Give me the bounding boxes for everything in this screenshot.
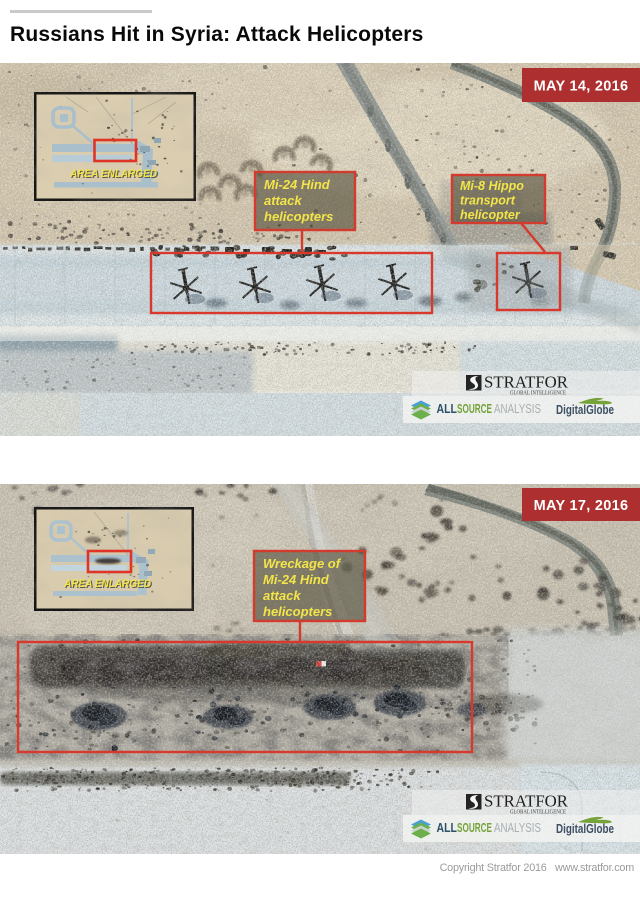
svg-text:DigitalGlobe: DigitalGlobe	[556, 821, 614, 836]
svg-text:ANALYSIS: ANALYSIS	[494, 402, 541, 416]
svg-text:helicopters: helicopters	[263, 604, 332, 619]
svg-text:helicopters: helicopters	[264, 209, 333, 224]
svg-text:Mi-24 Hind: Mi-24 Hind	[264, 177, 331, 192]
svg-text:GLOBAL INTELLIGENCE: GLOBAL INTELLIGENCE	[510, 390, 566, 397]
svg-text:ALL: ALL	[437, 402, 458, 416]
svg-text:DigitalGlobe: DigitalGlobe	[556, 402, 614, 417]
svg-text:MAY 14, 2016: MAY 14, 2016	[534, 79, 629, 95]
svg-text:AREA ENLARGED: AREA ENLARGED	[63, 578, 151, 590]
svg-text:Mi-8 Hippo: Mi-8 Hippo	[460, 179, 524, 193]
svg-text:Wreckage of: Wreckage of	[263, 556, 342, 571]
svg-text:SOURCE: SOURCE	[457, 402, 492, 416]
svg-text:Mi-24 Hind: Mi-24 Hind	[263, 572, 330, 587]
svg-text:SOURCE: SOURCE	[457, 821, 492, 835]
svg-text:GLOBAL INTELLIGENCE: GLOBAL INTELLIGENCE	[510, 809, 566, 816]
svg-text:MAY 17, 2016: MAY 17, 2016	[534, 498, 629, 514]
svg-text:attack: attack	[264, 193, 302, 208]
svg-text:ANALYSIS: ANALYSIS	[494, 821, 541, 835]
svg-text:AREA ENLARGED: AREA ENLARGED	[69, 168, 157, 180]
svg-text:attack: attack	[263, 588, 301, 603]
svg-text:ALL: ALL	[437, 821, 458, 835]
svg-text:transport: transport	[460, 194, 516, 208]
svg-text:helicopter: helicopter	[460, 208, 521, 222]
